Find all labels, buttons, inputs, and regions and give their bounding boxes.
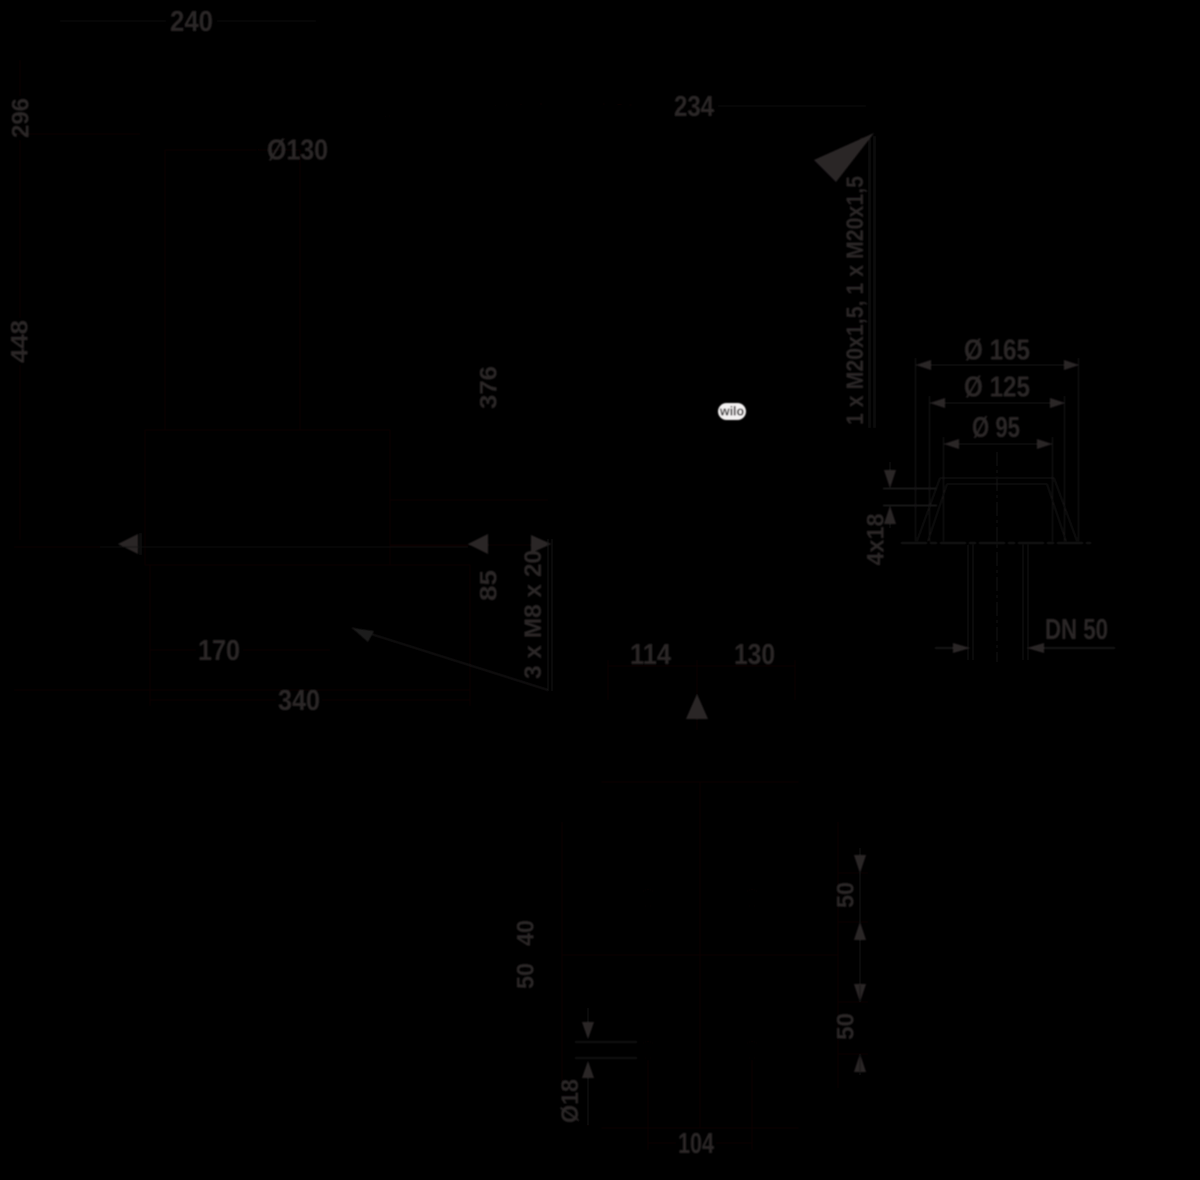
svg-text:448: 448	[7, 320, 34, 363]
svg-text:114: 114	[630, 639, 671, 671]
svg-text:50: 50	[833, 882, 860, 908]
svg-text:4x18: 4x18	[863, 514, 890, 566]
svg-text:wilo: wilo	[719, 405, 745, 419]
svg-text:Ø 125: Ø 125	[964, 372, 1030, 404]
svg-text:Ø 95: Ø 95	[972, 412, 1020, 444]
svg-text:Ø 165: Ø 165	[964, 335, 1030, 367]
svg-text:170: 170	[198, 635, 240, 667]
svg-text:50: 50	[513, 963, 540, 989]
svg-text:40: 40	[513, 920, 540, 946]
svg-text:240: 240	[170, 6, 213, 38]
svg-text:3 x M8 x 20: 3 x M8 x 20	[520, 550, 547, 679]
svg-text:85: 85	[476, 570, 503, 601]
svg-text:376: 376	[476, 366, 503, 409]
svg-text:DN 50: DN 50	[1045, 614, 1108, 646]
svg-text:104: 104	[678, 1128, 714, 1160]
svg-text:296: 296	[8, 98, 35, 138]
svg-text:234: 234	[674, 91, 714, 123]
svg-text:Ø130: Ø130	[267, 135, 328, 167]
svg-text:50: 50	[833, 1013, 860, 1040]
svg-text:Ø18: Ø18	[557, 1079, 584, 1123]
svg-text:130: 130	[734, 639, 775, 671]
svg-text:1 x M20x1,5, 1 x M20x1,5: 1 x M20x1,5, 1 x M20x1,5	[842, 176, 869, 425]
svg-text:340: 340	[278, 685, 320, 717]
